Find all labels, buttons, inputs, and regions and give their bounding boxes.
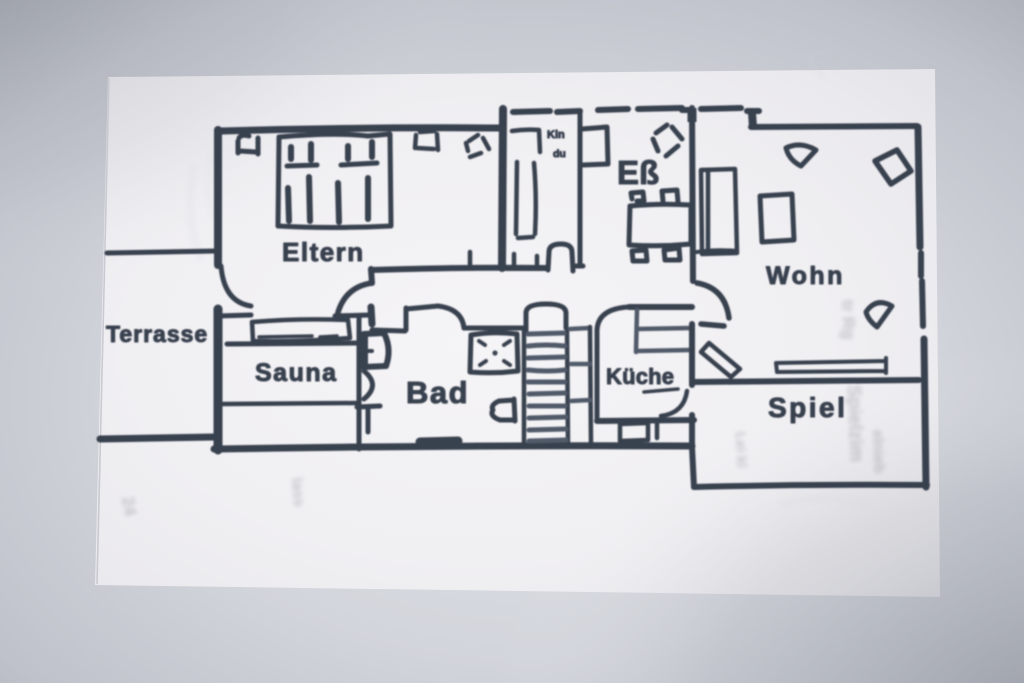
- svg-text:tr Rg: tr Rg: [838, 299, 858, 339]
- svg-text:Eltern: Eltern: [282, 237, 365, 267]
- svg-text:Terrasse: Terrasse: [106, 321, 208, 347]
- svg-text:Kin: Kin: [547, 129, 565, 141]
- svg-text:Spiel: Spiel: [768, 392, 847, 423]
- svg-text:24: 24: [118, 495, 140, 517]
- svg-text:du: du: [553, 148, 566, 160]
- svg-text:lass: lass: [288, 477, 307, 508]
- svg-text:Bad: Bad: [406, 375, 469, 410]
- svg-text:Wohn: Wohn: [766, 262, 845, 290]
- svg-text:Küche: Küche: [606, 364, 674, 389]
- svg-text:Sauna: Sauna: [255, 359, 338, 387]
- svg-text:Eß: Eß: [617, 154, 659, 191]
- svg-text:elnieb: elnieb: [869, 430, 888, 474]
- svg-text:Lei kl: Lei kl: [733, 432, 750, 468]
